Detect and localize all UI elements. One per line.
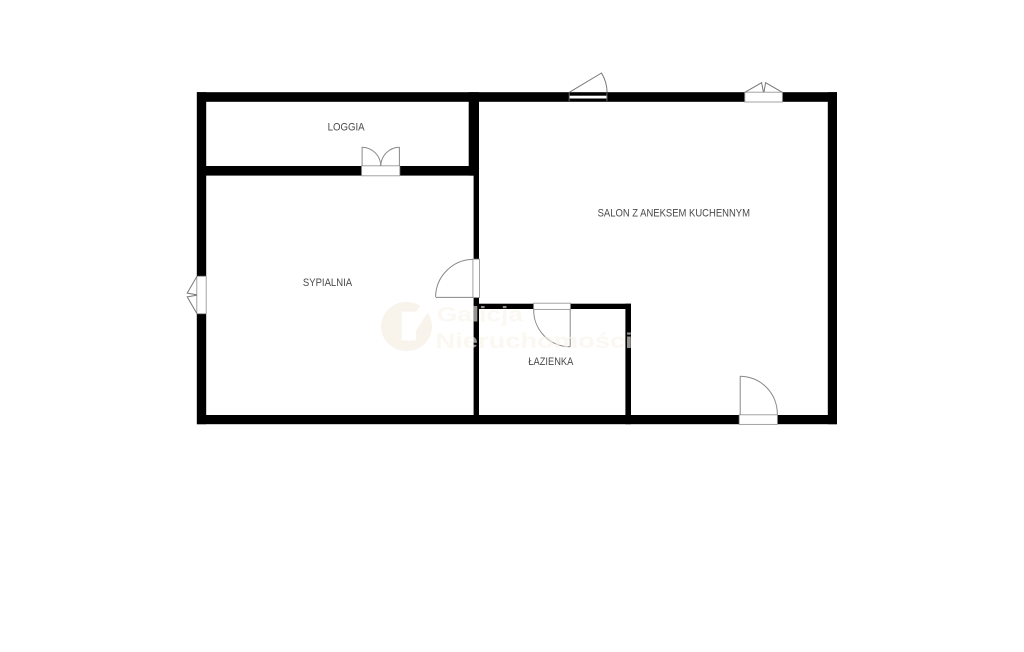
svg-text:Nieruchomości: Nieruchomości bbox=[436, 329, 633, 353]
svg-text:SYPIALNIA: SYPIALNIA bbox=[303, 277, 353, 289]
svg-text:SALON Z ANEKSEM KUCHENNYM: SALON Z ANEKSEM KUCHENNYM bbox=[598, 208, 750, 220]
svg-text:Galicja: Galicja bbox=[437, 302, 524, 326]
svg-text:ŁAZIENKA: ŁAZIENKA bbox=[528, 356, 574, 368]
svg-text:LOGGIA: LOGGIA bbox=[328, 121, 366, 133]
